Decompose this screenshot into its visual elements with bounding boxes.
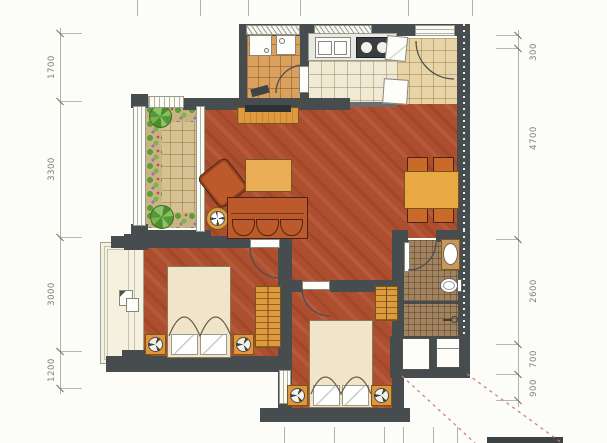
entry-door-opening [415, 25, 455, 36]
dimension-label: 4700 [528, 108, 540, 168]
shower-head-icon [451, 316, 458, 323]
entry-cabinet [382, 78, 409, 105]
nightstand [233, 334, 254, 355]
nightstand-lamp-icon [236, 337, 251, 352]
dimension-label: 3300 [46, 139, 58, 199]
extension-line [496, 48, 518, 49]
dimension-line-right [518, 30, 519, 407]
nightstand-lamp-icon [374, 388, 389, 403]
tv [245, 105, 291, 112]
extension-line [457, 427, 458, 443]
balcony-left-window [133, 106, 146, 226]
door-leaf-bedroom2 [302, 281, 330, 290]
potted-plant-icon [150, 205, 174, 229]
toilet-tank [457, 279, 462, 292]
table-ornament [210, 211, 225, 226]
sofa-cushion [232, 219, 255, 236]
shaft [402, 338, 430, 370]
wash-basin [443, 243, 458, 265]
nightstand [287, 385, 308, 406]
extension-line [496, 239, 518, 240]
sofa-cushion [280, 219, 303, 236]
extension-line [408, 0, 409, 16]
balcony-living-window [196, 106, 205, 232]
wall-bedroom2-bottom [260, 408, 410, 422]
door-leaf-bedroom1 [250, 239, 280, 248]
ac-unit-icon [126, 298, 139, 312]
extension-line [137, 0, 138, 16]
extension-line [248, 0, 249, 16]
floor-plan-canvas: 1700 3300 3000 1200 300 4700 2600 700 90… [0, 0, 607, 443]
burner [361, 42, 372, 53]
washing-machine [249, 35, 272, 56]
nightstand-lamp-icon [148, 337, 163, 352]
dimension-label: 1200 [46, 340, 58, 400]
wall-kitchen-utility-divider [300, 92, 309, 110]
extension-line [200, 0, 201, 16]
dining-table [404, 171, 459, 209]
kitchen-sink [315, 37, 351, 58]
sofa-seat-line [231, 213, 304, 214]
heater-dial [279, 38, 285, 44]
wall-bedroom2-top [288, 280, 302, 292]
leader-dashed-line [402, 376, 475, 443]
leader-dashed-line [467, 374, 562, 443]
sink-basin [318, 41, 332, 55]
washer-dial [264, 48, 269, 53]
extension-line [403, 427, 404, 443]
adjacent-drawing-fragment [487, 437, 563, 443]
extension-line [496, 35, 518, 36]
toilet-seat [443, 281, 455, 290]
dimension-label: 900 [528, 358, 540, 418]
water-heater [276, 35, 296, 55]
extension-line [496, 400, 518, 401]
wall-bath-bedroom2-divider [392, 238, 404, 422]
extension-line [496, 374, 518, 375]
sofa-cushion [256, 219, 279, 236]
nightstand [371, 385, 392, 406]
dimension-label: 2600 [528, 261, 540, 321]
fridge [385, 35, 408, 62]
sofa [227, 197, 308, 239]
balcony-top-window [148, 96, 184, 108]
round-side-table [206, 207, 229, 230]
sink-basin [334, 41, 347, 55]
wall-bathroom-top [392, 230, 408, 242]
dimension-label: 1700 [46, 37, 58, 97]
dimension-line-left [60, 28, 61, 394]
shower-partition [398, 301, 458, 304]
extension-line [300, 0, 301, 16]
extension-line [284, 427, 285, 443]
extension-line [60, 237, 82, 238]
toilet [440, 278, 458, 293]
nightstand [145, 334, 166, 355]
extension-line [60, 33, 82, 34]
wardrobe [375, 286, 398, 321]
extension-line [433, 427, 434, 443]
coffee-table [245, 159, 292, 192]
door-leaf-bathroom [404, 242, 410, 272]
pillow [171, 334, 198, 355]
utility-window [246, 25, 300, 35]
nightstand-lamp-icon [290, 388, 305, 403]
extension-line [60, 388, 82, 389]
wall-bay-corner [124, 234, 148, 250]
wardrobe [255, 286, 281, 348]
door-leaf-utility [299, 66, 309, 93]
extension-line [60, 101, 82, 102]
extension-line [472, 0, 473, 16]
pillow [342, 385, 369, 406]
shower-head-arm [443, 319, 452, 321]
dimension-label: 300 [528, 22, 540, 82]
potted-plant-icon [149, 105, 172, 128]
extension-line [384, 427, 385, 443]
extension-line [334, 427, 335, 443]
dimension-label: 3000 [46, 264, 58, 324]
shaft-louvre [436, 338, 460, 368]
extension-line [60, 351, 82, 352]
pillow [200, 334, 227, 355]
extension-line [496, 344, 518, 345]
pillow [313, 385, 340, 406]
